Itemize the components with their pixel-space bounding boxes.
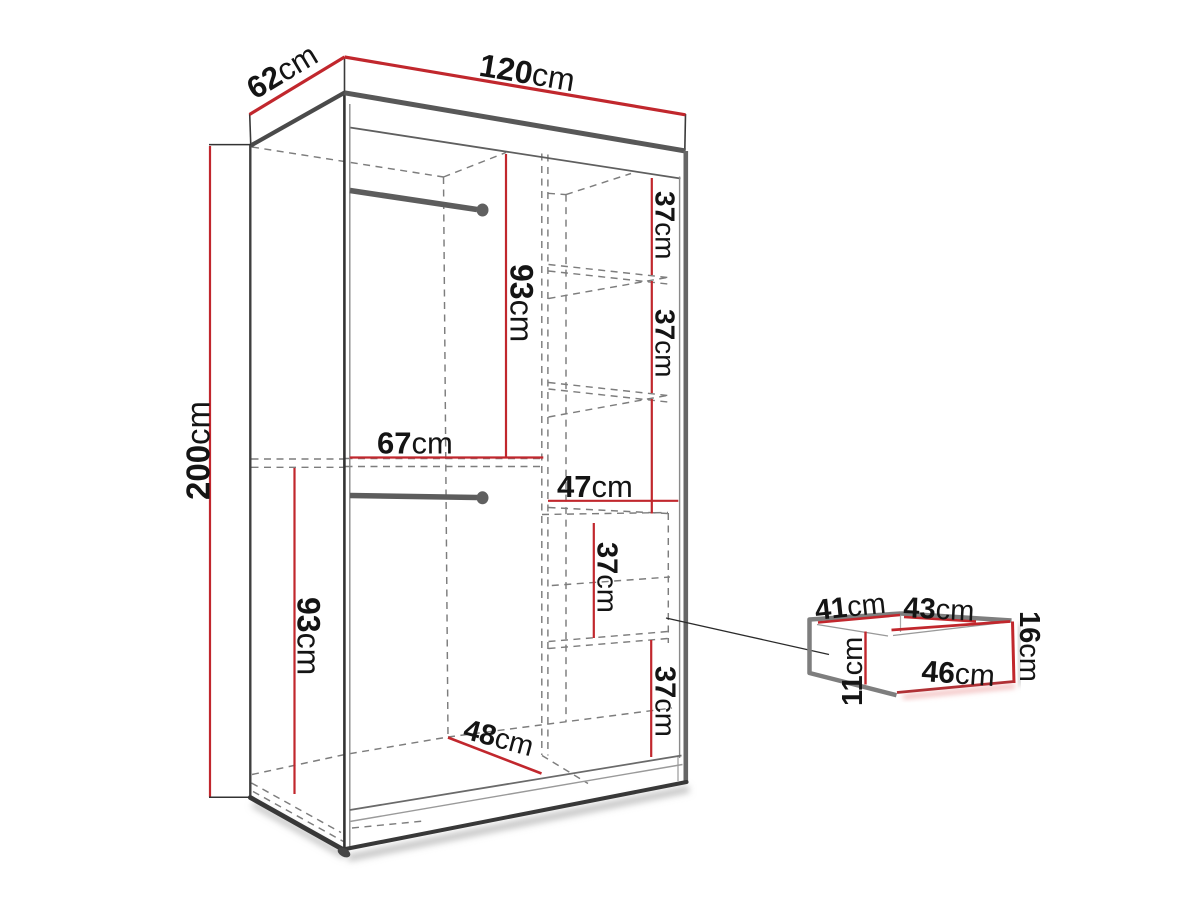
svg-text:120cm: 120cm (477, 47, 578, 98)
svg-text:37cm: 37cm (650, 191, 681, 259)
svg-text:93cm: 93cm (504, 264, 540, 342)
svg-text:93cm: 93cm (291, 597, 327, 675)
svg-text:37cm: 37cm (650, 309, 681, 377)
svg-text:11cm: 11cm (837, 637, 869, 706)
svg-text:41cm: 41cm (813, 588, 887, 627)
svg-text:37cm: 37cm (591, 542, 623, 613)
svg-text:16cm: 16cm (1013, 611, 1045, 682)
svg-text:47cm: 47cm (557, 469, 633, 504)
svg-text:37cm: 37cm (649, 666, 681, 737)
svg-text:67cm: 67cm (377, 426, 453, 461)
svg-text:200cm: 200cm (180, 401, 217, 500)
svg-text:43cm: 43cm (903, 592, 976, 628)
svg-text:46cm: 46cm (921, 655, 996, 693)
